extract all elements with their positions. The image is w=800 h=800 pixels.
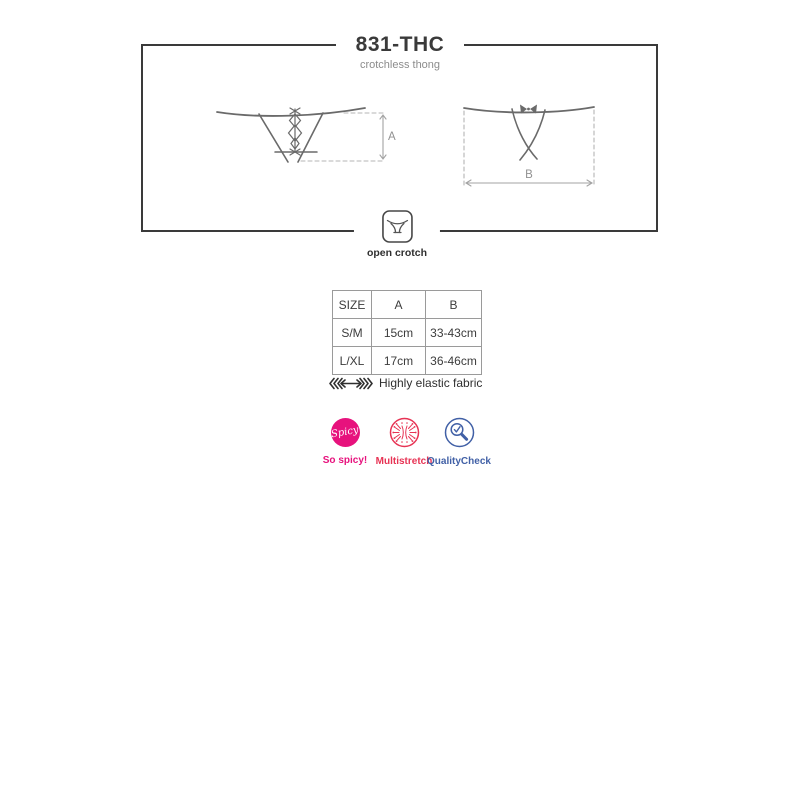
dimension-a-label: A [388, 131, 396, 143]
column-header-a: A [372, 291, 426, 319]
thong-back-view-drawing: B [464, 105, 594, 187]
thong-front-view-drawing: A [217, 108, 396, 162]
badge-quality-check: QualityCheck [414, 417, 504, 467]
quality-check-icon [444, 417, 475, 448]
size-table: SIZE A B S/M 15cm 33-43cm L/XL 17cm 36-4… [332, 290, 482, 375]
elastic-stretch-icon [329, 377, 373, 390]
column-header-size: SIZE [333, 291, 372, 319]
dimension-b-label: B [525, 169, 533, 181]
open-crotch-label: open crotch [367, 247, 427, 259]
header: 831-THC crotchless thong [0, 33, 800, 71]
front-right-edge [298, 113, 323, 162]
cell-a: 17cm [372, 347, 426, 375]
column-header-b: B [426, 291, 482, 319]
back-left-strap [512, 109, 537, 159]
spicy-badge-icon: Spicy [331, 418, 360, 447]
spicy-icon-text: Spicy [330, 425, 359, 441]
cell-b: 36-46cm [426, 347, 482, 375]
badge-label: QualityCheck [427, 456, 491, 467]
garment-diagram: A B [141, 45, 658, 232]
open-crotch-icon [382, 210, 413, 243]
product-subtitle: crotchless thong [0, 59, 800, 71]
product-title: 831-THC [336, 33, 465, 56]
cell-size: L/XL [333, 347, 372, 375]
front-left-edge [259, 114, 288, 162]
cell-size: S/M [333, 319, 372, 347]
cell-b: 33-43cm [426, 319, 482, 347]
product-size-chart: A B 831-THC crotchless thon [0, 0, 800, 800]
table-row: S/M 15cm 33-43cm [333, 319, 482, 347]
fabric-note: Highly elastic fabric [329, 376, 482, 390]
fabric-note-text: Highly elastic fabric [379, 376, 482, 390]
dimension-a-lines [301, 113, 386, 161]
open-crotch-feature: open crotch [354, 210, 440, 259]
table-row: L/XL 17cm 36-46cm [333, 347, 482, 375]
size-table-header-row: SIZE A B [333, 291, 482, 319]
cell-a: 15cm [372, 319, 426, 347]
